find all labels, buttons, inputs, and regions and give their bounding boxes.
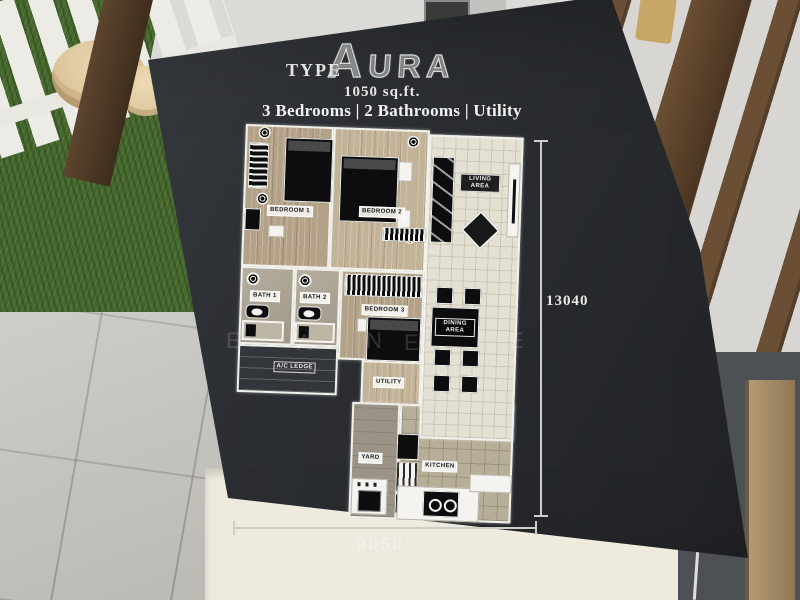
dining-table: DINING AREA	[430, 307, 479, 349]
plan-features-label: 3 Bedrooms | 2 Bathrooms | Utility	[262, 101, 522, 121]
bed-pillow	[288, 140, 330, 151]
kitchen-tall-cabinet	[396, 433, 419, 460]
stove	[422, 490, 459, 517]
dining-chair	[436, 287, 454, 305]
bed-pillow	[344, 158, 396, 170]
utility-label: UTILITY	[373, 377, 405, 389]
plan-type-logo: AURA	[326, 34, 458, 89]
yard-label: YARD	[358, 452, 382, 464]
dining-chair	[464, 288, 482, 306]
toilet-seat	[303, 310, 314, 317]
toilet-seat	[251, 308, 262, 315]
bedroom2-nightstand	[398, 161, 413, 181]
tan-object	[635, 0, 677, 44]
kitchen-counter-return	[469, 474, 512, 493]
vertical-dimension-line	[540, 140, 542, 517]
ac-ledge-label: A/C LEDGE	[273, 361, 316, 373]
watermark-letter: E	[509, 328, 524, 354]
bath1-label: BATH 1	[250, 290, 280, 302]
bedroom2-dresser	[382, 227, 426, 243]
bedroom3-label: BEDROOM 3	[361, 304, 407, 316]
vertical-dimension-value: 13040	[546, 293, 589, 310]
bedroom3-wardrobe	[344, 274, 423, 299]
dining-chair	[433, 375, 451, 393]
horizontal-dimension-value: 9050	[356, 534, 404, 555]
bedroom1-bed	[283, 137, 333, 203]
watermark-letter: A	[297, 330, 312, 356]
horizontal-dimension-line	[233, 527, 537, 529]
washing-machine	[350, 478, 387, 515]
dining-chair	[434, 349, 452, 367]
burner-icon	[444, 499, 457, 512]
tub-end	[246, 324, 256, 336]
washer-controls	[357, 482, 381, 487]
bedroom2-label: BEDROOM 2	[359, 206, 405, 218]
bath1-tub	[241, 320, 284, 341]
watermark-letter: E	[226, 328, 241, 354]
dining-chair	[462, 350, 480, 368]
bath2-toilet	[297, 306, 321, 321]
dining-area-label: DINING AREA	[435, 318, 476, 337]
bath1-toilet	[245, 304, 269, 319]
bath2-label: BATH 2	[300, 292, 330, 304]
living-area-label: LIVING AREA	[460, 174, 501, 193]
kitchen-label: KITCHEN	[422, 460, 458, 472]
bedroom1-label: BEDROOM 1	[267, 205, 313, 217]
tv-console	[430, 157, 455, 244]
bedroom1-wardrobe	[248, 142, 270, 189]
bedroom1-dresser	[268, 225, 284, 238]
showroom-scene: TYPE AURA 1050 sq.ft. 3 Bedrooms | 2 Bat…	[0, 0, 800, 600]
washer-door	[358, 490, 382, 512]
burner-icon	[429, 499, 442, 512]
plan-area-label: 1050 sq.ft.	[344, 84, 420, 101]
dining-chair	[461, 376, 479, 394]
bedroom1-cabinet	[244, 208, 261, 231]
watermark-letter: N	[366, 328, 382, 354]
wood-post-bottom-right	[745, 380, 795, 600]
watermark-letter: E	[404, 330, 419, 356]
floor-plan: DINING AREA BEDROOM 1 BEDROOM 2	[232, 124, 524, 525]
